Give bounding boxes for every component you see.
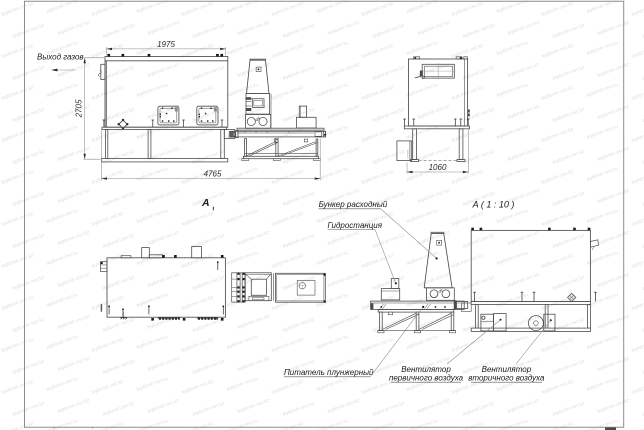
svg-text:первичного воздуха: первичного воздуха	[389, 374, 464, 383]
svg-text:Гидростанция: Гидростанция	[328, 221, 383, 230]
svg-text:Выход газов: Выход газов	[37, 53, 84, 62]
svg-text:вторичного воздуха: вторичного воздуха	[468, 374, 545, 383]
svg-text:1060: 1060	[429, 163, 447, 172]
svg-text:Бункер расходный: Бункер расходный	[319, 200, 388, 209]
svg-text:A: A	[201, 197, 210, 209]
svg-text:Питатель плунжерный: Питатель плунжерный	[284, 368, 374, 377]
svg-text:4765: 4765	[204, 170, 222, 179]
svg-text:A ( 1 : 10 ): A ( 1 : 10 )	[472, 200, 515, 210]
svg-text:2705: 2705	[75, 99, 84, 118]
svg-text:1975: 1975	[157, 40, 175, 49]
